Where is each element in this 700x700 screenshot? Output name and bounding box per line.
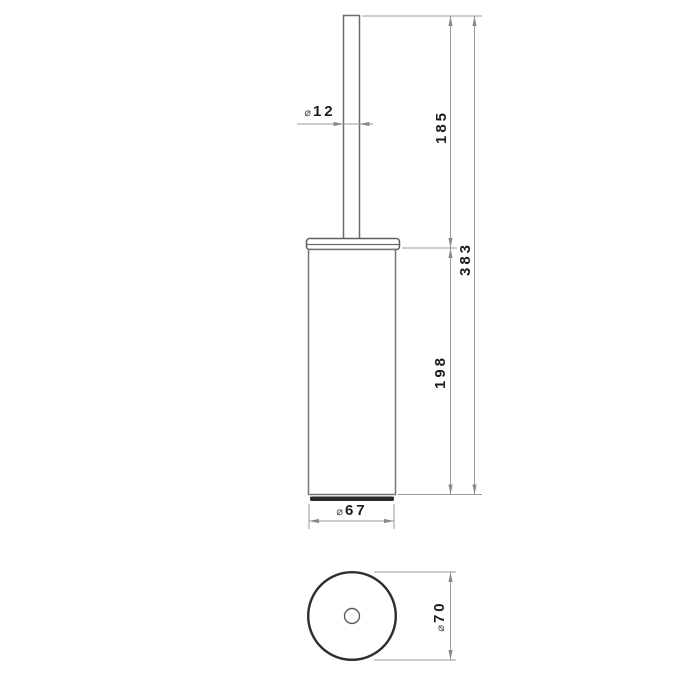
bottom-view — [308, 572, 396, 660]
arrow-up-icon — [472, 16, 476, 26]
technical-drawing-canvas: ⌀12 185 383 198 ⌀67 ⌀70 — [0, 0, 700, 700]
arrow-up-icon — [448, 572, 452, 582]
arrow-down-icon — [448, 485, 452, 495]
arrow-up-icon — [448, 248, 452, 258]
arrow-right-icon — [384, 519, 394, 523]
dim-label-rod-diameter: ⌀12 — [296, 103, 344, 121]
arrow-left-icon — [360, 122, 370, 126]
dim-label-outer-diameter: ⌀70 — [431, 581, 449, 651]
dim-label-total-length: 383 — [457, 224, 475, 294]
diameter-symbol-icon: ⌀ — [434, 623, 447, 632]
drawing-linework — [0, 0, 700, 700]
base-ring — [310, 497, 394, 502]
handle-rod — [344, 16, 360, 241]
arrow-down-icon — [448, 238, 452, 248]
rod-diameter-dimension — [297, 122, 373, 126]
dim-label-body-length: 198 — [432, 337, 450, 407]
diameter-symbol-icon: ⌀ — [304, 106, 313, 119]
arrow-down-icon — [472, 485, 476, 495]
diameter-symbol-icon: ⌀ — [336, 505, 345, 518]
front-view — [307, 16, 400, 502]
canister-body — [309, 250, 396, 495]
arrow-down-icon — [448, 650, 452, 660]
arrow-right-icon — [334, 122, 344, 126]
bottom-view-center-hole — [345, 609, 360, 624]
arrow-up-icon — [448, 16, 452, 26]
dim-label-handle-length: 185 — [433, 92, 451, 162]
dim-label-body-diameter: ⌀67 — [322, 502, 382, 520]
arrow-left-icon — [309, 519, 319, 523]
